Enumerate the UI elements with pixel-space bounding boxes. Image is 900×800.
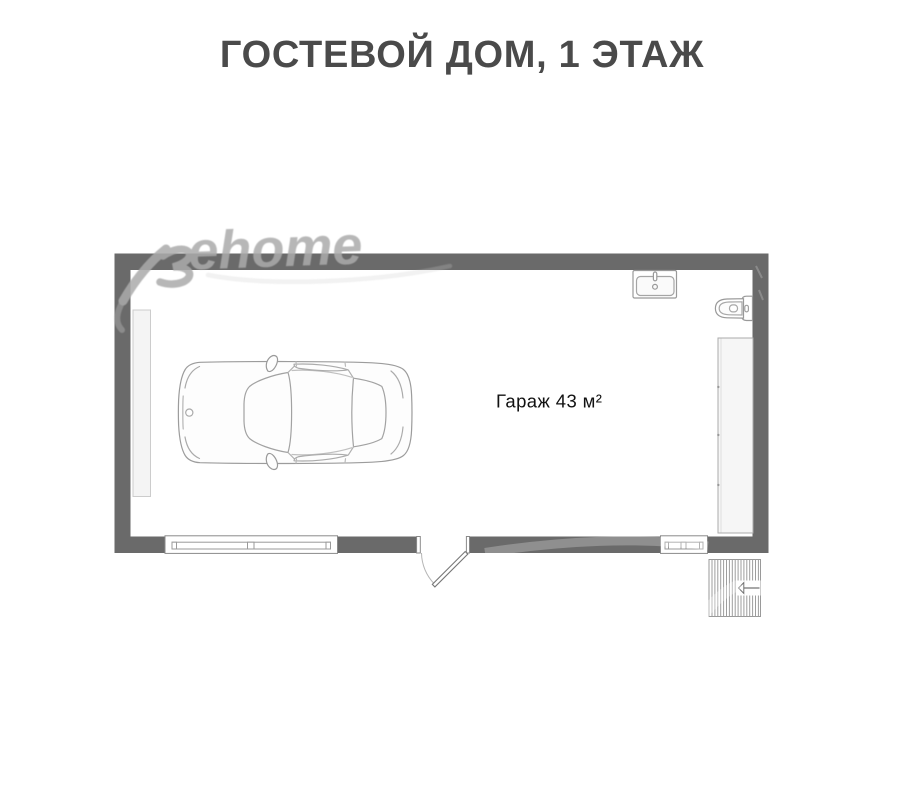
svg-text:ГОСТЕВОЙ ДОМ, 1 ЭТАЖ: ГОСТЕВОЙ ДОМ, 1 ЭТАЖ [220,31,704,76]
svg-text:Гараж 43 м²: Гараж 43 м² [496,391,602,412]
svg-text:ehome: ehome [187,215,363,281]
